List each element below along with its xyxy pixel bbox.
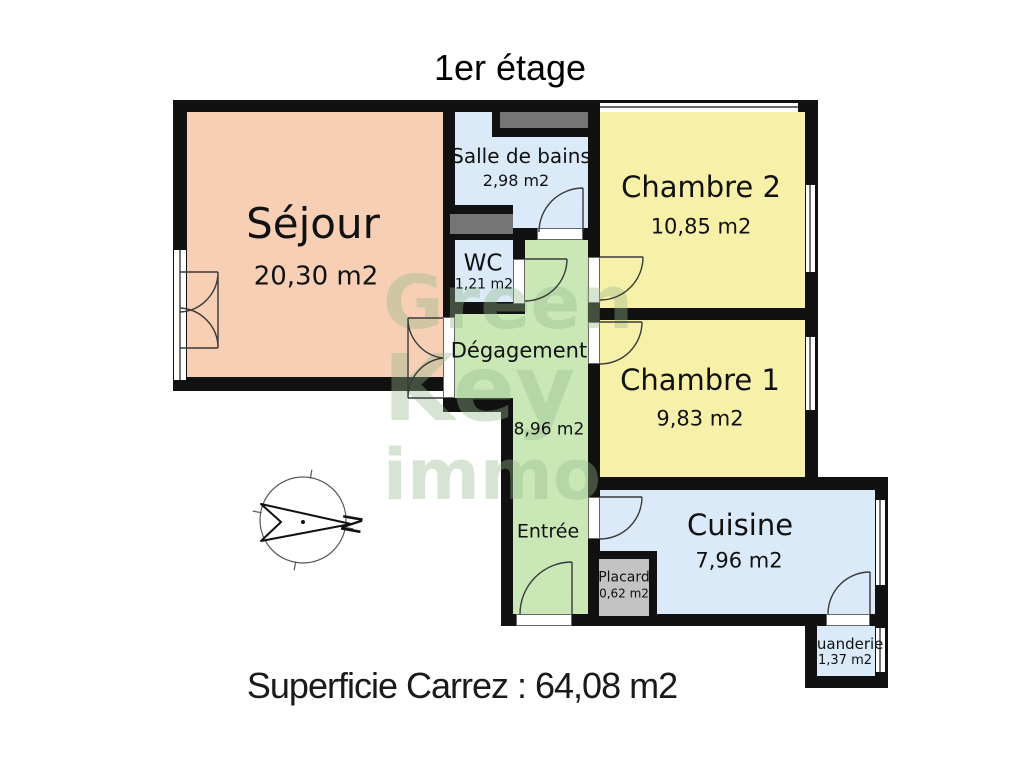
window-chambre2-top: [600, 103, 798, 112]
duct-sdb: [500, 112, 588, 128]
wall-duct-sdb-left: [492, 112, 500, 128]
wall-chambres-right: [805, 100, 818, 490]
area-sejour: 20,30 m2: [254, 263, 379, 292]
compass-circle: [260, 477, 346, 563]
area-cuisine: 7,96 m2: [695, 549, 782, 572]
label-entree: Entrée: [517, 522, 579, 543]
area-buanderie: 1,37 m2: [818, 654, 872, 668]
area-placard: 0,62 m2: [599, 587, 649, 600]
wall-under-duct-sdb: [492, 128, 588, 137]
area-sdb: 2,98 m2: [483, 172, 549, 190]
duct-wc: [450, 214, 513, 234]
compass-ticks: [244, 461, 362, 579]
window-chambre1-right: [806, 337, 815, 410]
label-placard: Placard: [598, 570, 650, 585]
area-degagement: 8,96 m2: [514, 421, 585, 440]
wall-under-duct-wc: [443, 234, 513, 240]
door-opening-entree: [516, 614, 572, 626]
label-chambre2: Chambre 2: [621, 172, 781, 204]
compass: N: [244, 461, 368, 579]
label-sejour: Séjour: [246, 201, 380, 247]
label-wc: WC: [464, 251, 503, 276]
door-opening-sdb: [537, 228, 583, 240]
label-chambre1: Chambre 1: [620, 365, 780, 397]
compass-north-label: N: [333, 511, 367, 536]
area-chambre1: 9,83 m2: [656, 407, 743, 430]
compass-center-dot: [301, 520, 305, 524]
window-cuisine-right: [876, 500, 885, 585]
carrez-area-caption: Superficie Carrez : 64,08 m2: [247, 666, 677, 706]
door-opening-buanderie: [826, 614, 870, 626]
watermark-line-3: immo: [383, 442, 601, 509]
area-wc: 1,21 m2: [455, 277, 513, 292]
label-sdb: Salle de bains: [451, 145, 591, 167]
wall-sdb-bottom-left: [443, 205, 513, 214]
label-cuisine: Cuisine: [687, 510, 793, 542]
window-chambre2-right: [806, 185, 815, 272]
compass-needle: [261, 504, 351, 541]
floorplan-canvas: 1er étage Superficie Carrez : 64,08 m2: [0, 0, 1024, 768]
page-title: 1er étage: [434, 48, 586, 88]
window-sejour-left: [174, 250, 186, 380]
area-chambre2: 10,85 m2: [651, 215, 752, 238]
wall-cuisine-top: [588, 477, 888, 490]
label-buanderie: Buanderie: [807, 636, 884, 653]
label-degagement: Dégagement: [451, 339, 587, 362]
